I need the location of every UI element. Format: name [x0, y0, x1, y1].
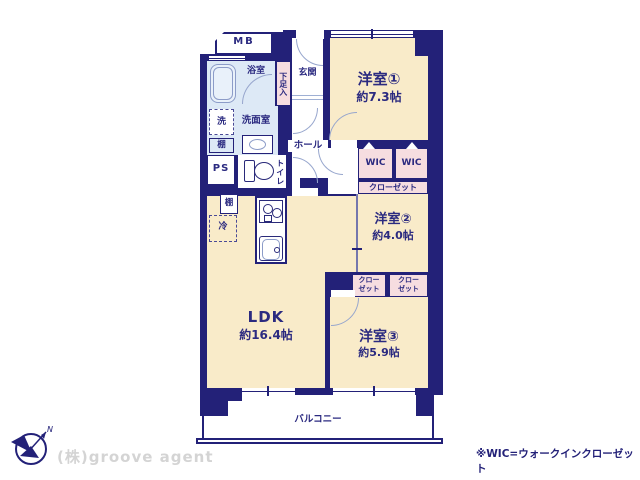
window-tick-1 [371, 29, 373, 39]
floorplan-canvas: MB 浴室 下足入 玄関 ホール 洗 洗面室 棚 PS トイレ 洋室① [0, 0, 640, 480]
closet3-left-label: クロー ゼット [352, 276, 386, 294]
balcony-wall-left [200, 395, 228, 416]
yoshitsu2-labels: 洋室② 約4.0帖 [358, 212, 428, 243]
balcony-rail-bottom [196, 438, 443, 444]
closet3-right-line1: クロー [389, 276, 428, 285]
yoshitsu2-name: 洋室② [358, 212, 428, 229]
ldk-extension [325, 196, 357, 272]
shoe-box-label: 下足入 [278, 64, 288, 104]
wic-right-label: WIC [395, 158, 428, 169]
bath-label: 浴室 [238, 66, 274, 77]
balcony-label: バルコニー [278, 414, 358, 426]
stove [259, 200, 283, 223]
washbasin [242, 135, 273, 154]
window-tick-3 [373, 386, 375, 396]
ldk-labels: LDK 約16.4帖 [207, 308, 325, 343]
yoshitsu3-name: 洋室③ [330, 328, 428, 346]
closet3-right-label: クロー ゼット [389, 276, 428, 294]
ldk-size: 約16.4帖 [207, 328, 325, 344]
bathtub [210, 64, 236, 103]
washer-label: 洗 [209, 117, 234, 128]
entrance-step-line2 [292, 99, 323, 100]
closet3-left-line2: ゼット [352, 285, 386, 294]
hall-ldk-doorway [292, 188, 318, 196]
shelf-ldk-label: 棚 [220, 198, 238, 208]
fridge-label: 冷 [209, 222, 237, 233]
wic-left-label: WIC [358, 158, 393, 169]
toilet-label: トイレ [275, 157, 285, 187]
yoshitsu3-doorway [331, 290, 355, 297]
yoshitsu1-name: 洋室① [330, 70, 428, 90]
closet3-left-line1: クロー [352, 276, 386, 285]
compass-north-logo: N [8, 422, 56, 470]
entrance-step-line [292, 95, 323, 96]
wic-note: ※WIC=ウォークインクローゼット [476, 446, 640, 476]
ldk-name: LDK [207, 308, 325, 328]
compass-north-label: N [47, 425, 53, 434]
yoshitsu1-doorway [331, 140, 357, 148]
yoshitsu3-size: 約5.9帖 [330, 346, 428, 360]
yoshitsu1-labels: 洋室① 約7.3帖 [330, 70, 428, 105]
meter-box-label: MB [224, 36, 264, 48]
balcony-wall-right [416, 395, 434, 416]
wall-corner-notch [415, 38, 428, 56]
entrance-doorway [296, 30, 324, 39]
shelf-washroom-label: 棚 [209, 140, 234, 150]
yoshitsu2-size: 約4.0帖 [358, 229, 428, 243]
entrance-label: 玄関 [292, 68, 323, 79]
balcony-wall-left2 [228, 395, 242, 401]
bath-window [209, 56, 245, 60]
closet3-right-line2: ゼット [389, 285, 428, 294]
kitchen-sink [259, 236, 283, 261]
washroom-label: 洗面室 [234, 115, 278, 127]
pipe-space-label: PS [207, 163, 235, 175]
toilet-bowl [254, 162, 274, 180]
yoshitsu3-labels: 洋室③ 約5.9帖 [330, 328, 428, 360]
brand-text: (株)groove agent [57, 446, 214, 467]
window-tick-2 [267, 386, 269, 396]
closet-strip-label: クローゼット [358, 183, 428, 193]
yoshitsu1-size: 約7.3帖 [330, 90, 428, 106]
sliding-door-tick [352, 248, 362, 250]
wall-mb-connector [273, 32, 283, 56]
